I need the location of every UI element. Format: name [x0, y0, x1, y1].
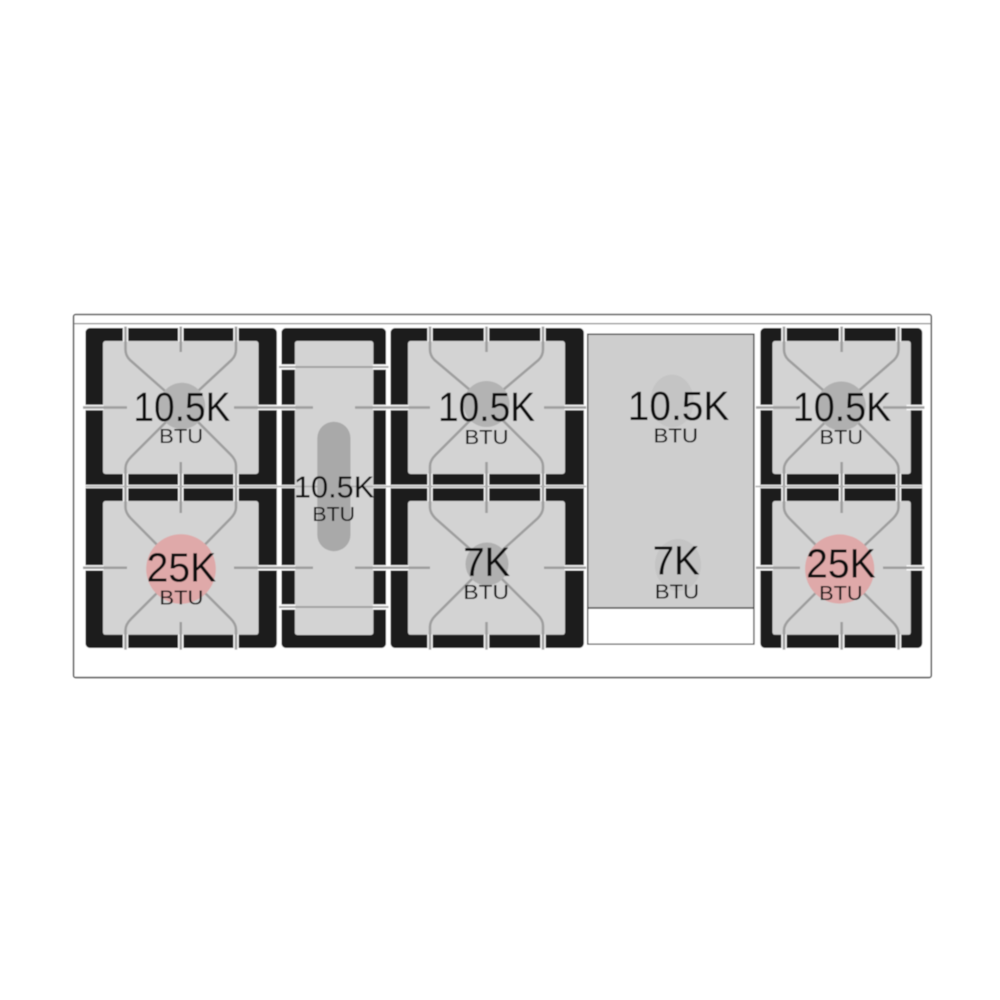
- svg-text:10.5K: 10.5K: [133, 384, 230, 430]
- svg-text:BTU: BTU: [819, 583, 863, 605]
- svg-text:BTU: BTU: [654, 425, 699, 447]
- svg-text:BTU: BTU: [655, 582, 700, 604]
- svg-text:BTU: BTU: [159, 588, 203, 610]
- svg-text:10.5K: 10.5K: [438, 384, 535, 430]
- svg-text:25K: 25K: [806, 541, 876, 587]
- svg-text:7K: 7K: [463, 539, 510, 585]
- svg-text:10.5K: 10.5K: [294, 470, 375, 505]
- svg-text:25K: 25K: [147, 544, 217, 590]
- svg-text:7K: 7K: [653, 537, 700, 583]
- svg-text:BTU: BTU: [312, 504, 355, 526]
- svg-text:BTU: BTU: [820, 427, 864, 449]
- svg-text:BTU: BTU: [463, 582, 509, 604]
- svg-text:10.5K: 10.5K: [628, 383, 730, 429]
- svg-text:BTU: BTU: [159, 426, 203, 448]
- svg-text:10.5K: 10.5K: [793, 384, 892, 430]
- svg-text:BTU: BTU: [465, 427, 509, 449]
